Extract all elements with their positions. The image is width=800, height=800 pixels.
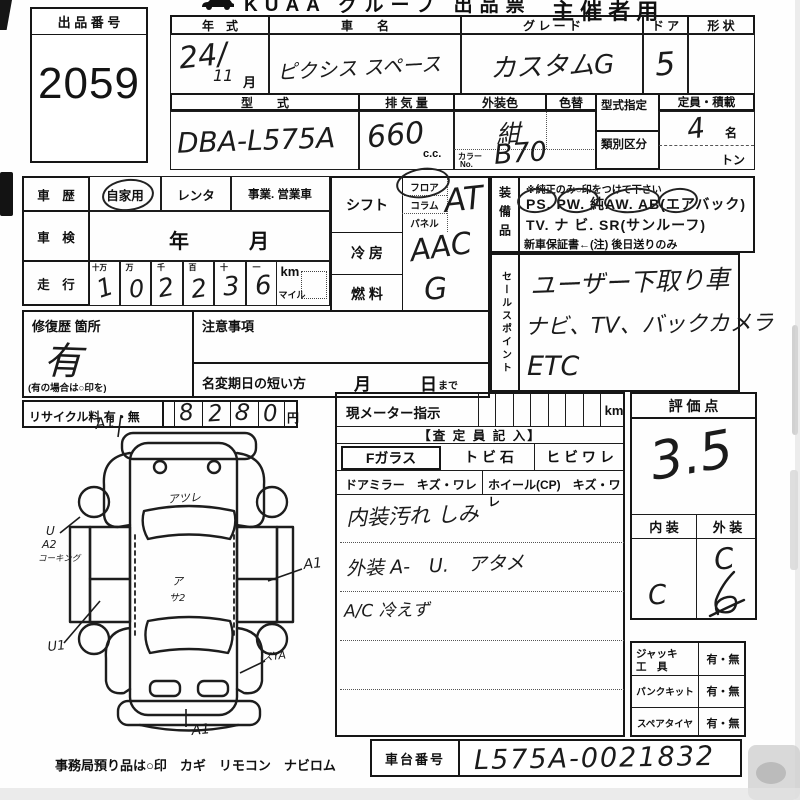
hood-nozzle [154,461,166,473]
meter-cell [530,394,547,426]
meter-cell [565,394,582,426]
model-header: 型 式 [170,93,360,111]
scan-artifact [756,762,786,784]
auction-sheet: KUAA グループ 出品票 主 催 者 用 出 品 番 号 2059 年 式 車… [0,0,800,800]
shape-header: 形 状 [687,15,755,35]
capacity-header: 定員・積載 [658,93,755,111]
diagram-annotation: アツレ [167,491,201,506]
name-value: ピクシス スペース [276,48,441,86]
capacity-unit: 名 [725,124,737,141]
sales-line2: ナビ、TV、バックカメラ [525,305,774,341]
digit-value: 3 [222,271,241,302]
front-door-flap-left [104,453,130,527]
class-label: 類別区分 [601,136,647,152]
month-suffix: 月 [243,72,256,91]
note-row: 内装汚れ しみ [340,494,624,543]
displacement-header: 排 気 量 [358,93,455,111]
fglass-label: Fガラス [341,446,441,470]
divider [482,470,483,494]
digit-value: 6 [253,270,272,301]
diagram-annotation: A1 [302,555,323,573]
divider [632,538,755,539]
diagram-annotation: A1 [93,413,116,433]
repair-note: (有の場合は○印を) [28,380,107,394]
caution-label: 注意事項 [202,316,254,335]
evaluation-label: 評 価 点 [632,394,755,419]
scan-artifact [748,745,800,800]
rear-window [145,617,232,653]
displacement-unit: c.c. [423,148,441,160]
color-no-value: B70 [493,136,548,171]
exterior-label: 外 装 [696,514,759,538]
meter-cell [583,394,600,426]
chassis-value: L575A-0021832 [474,741,716,776]
stone-label: ト ビ 石 [445,444,533,470]
equipment-box: 装備品 ※純正のみ○印をつけて下さい PS. PW. 純AW. AB(エアバック… [490,176,755,253]
shaken-cell: 年 月 [88,210,330,262]
wheel [257,487,287,517]
digit-header: 万 [126,262,134,273]
interior-label: 内 装 [632,514,696,538]
spare-label: スペアタイヤ [632,707,698,739]
diagram-annotation: U [46,524,55,538]
mileage-digit-cell: 十万1 [88,260,120,306]
door-value: 5 [654,44,677,83]
mirror-label: ドアミラー キズ・ワレ [345,476,477,493]
exhibit-number-box: 出 品 番 号 2059 [30,7,148,163]
diagram-annotation: コーキング [38,553,82,564]
rename-label: 名変期日の短い方 [202,373,306,392]
crack-label: ヒ ビ ワ レ [535,444,625,470]
year-header: 年 式 [170,15,270,35]
shaken-month: 月 [249,225,269,254]
door-panel-right [237,527,277,622]
divider [337,470,623,471]
equipment-label-cell: 装備品 [492,178,520,251]
sales-line1: ユーザー下取り車 [529,260,730,303]
assessor-header: 【査 定 員 記 入】 [337,426,623,444]
mileage-digit-cell: 十3 [214,260,246,306]
door-panel-left [90,527,130,622]
mileage-digit-cell: 一6 [246,260,278,306]
hood-nozzle [208,461,220,473]
door-cell: 5 [642,33,689,95]
handwritten-scribble [704,570,748,618]
fuel-label: 燃 料 [332,274,402,314]
chassis-box: 車台番号 L575A-0021832 [370,739,742,777]
color-change-header: 色替 [545,93,597,111]
leader-line [268,569,302,581]
leader-line [118,415,121,437]
shift-column: コラム [402,196,447,214]
jack-label-2: 工 具 [636,659,668,674]
interior-grade: C [646,579,668,612]
footer-note: 事務局預り品は○印 カギ リモコン ナビロム [55,755,336,774]
puncture-label: パンクキット [632,675,698,707]
wheel [79,624,109,654]
diagram-annotation: A2 [41,538,57,551]
diagram-annotation: スYA [261,649,287,664]
equipment-label: 装備品 [497,186,514,243]
history-label: 車 歴 [22,176,90,212]
mile-checkbox [301,271,327,299]
tail-light [150,681,180,696]
car-body [130,443,237,715]
digit-header: 千 [157,262,165,273]
color-no-label2: No. [460,160,473,169]
shaken-year: 年 [169,225,189,254]
tail-light [198,681,228,696]
km-label: km [281,264,300,279]
scan-artifact [792,325,798,435]
diagram-annotation: U1 [47,638,66,655]
side-sill-left [70,527,90,622]
digit-value: 0 [127,274,145,303]
scan-artifact [0,0,12,30]
model-value: DBA-L575A [176,121,335,160]
mileage-label: 走 行 [22,260,90,306]
type-designation-label: 型式指定 [601,97,647,113]
scan-artifact [795,0,800,800]
sales-label-cell: セールスポイント [492,255,520,390]
spare-options: 有・無 [698,707,748,739]
meter-label: 現メーター指示 [346,402,441,422]
scan-artifact [0,172,13,216]
repair-value: 有 [43,329,83,385]
car-damage-diagram: A1 アツレ U A2 コーキング ア サ2 A1 U1 スYA A1 [38,413,338,747]
jack-options: 有・無 [698,643,748,675]
assessor-box: 現メーター指示 km 【査 定 員 記 入】 Fガラス ト ビ 石 ヒ ビ ワ … [335,392,625,737]
cooling-label: 冷 房 [332,232,402,274]
meter-cell [548,394,565,426]
mileage-digit-cell: 百2 [183,260,215,306]
digit-value: 1 [93,271,117,303]
class-cell: 類別区分 [595,130,660,170]
history-business: 事業. 営業車 [230,176,330,212]
door-header: ド ア [642,15,689,35]
type-designation-cell: 型式指定 [595,93,660,132]
caution-box: 注意事項 [192,310,490,364]
sales-line3: ETC [527,351,579,382]
diagram-annotation: A1 [190,721,211,739]
exhibit-number-label: 出 品 番 号 [32,9,146,35]
year-cell: 24/ 11 月 [170,33,270,95]
mileage-digit-cell: 万0 [120,260,152,306]
meter-cells [478,394,600,426]
equipment-line3: 新車保証書←(注) 後日送りのみ [524,236,677,252]
meter-km: km [600,394,627,426]
shaken-label: 車 検 [22,210,90,262]
meter-cell [495,394,512,426]
grade-value: カスタムG [489,43,614,84]
grade-cell: カスタムG [460,33,644,95]
scan-artifact [790,470,798,570]
color-header: 外装色 [453,93,547,111]
fuel-value: G [423,271,449,308]
year-month-value: 11 [213,66,233,85]
displacement-cell: 660 c.c. [358,111,455,170]
sales-label: セールスポイント [498,271,513,375]
ton-label: トン [721,151,745,168]
note-row [340,690,624,735]
capacity-value: 4 [685,111,707,146]
assessor-note-3: A/C 冷えず [344,595,430,621]
divider [696,514,697,618]
name-cell: ピクシス スペース [268,33,462,95]
mileage-digit-cell: 千2 [151,260,183,306]
digit-header: 百 [189,262,197,273]
rear-flap-right [237,628,262,693]
note-row [340,641,624,690]
shape-cell [687,33,755,95]
name-header: 車 名 [268,15,462,35]
grade-header: グ レ ー ド [460,15,644,35]
assessor-note-2: 外装 A- U. アタメ [346,548,525,581]
evaluation-box: 評 価 点 3.5 内 装 外 装 C C [630,392,757,620]
note-row: 外装 A- U. アタメ [340,543,624,592]
chassis-label: 車台番号 [372,741,460,775]
assessor-note-1: 内装汚れ しみ [346,498,480,533]
cooling-value: AAC [408,226,474,269]
windshield [143,506,236,539]
scan-artifact [0,788,800,800]
rename-made: まで [438,377,458,392]
exhibit-number: 2059 [32,49,146,119]
evaluation-score: 3.5 [645,419,737,492]
digit-value: 2 [156,272,177,303]
front-door-flap-right [237,453,264,527]
model-cell: DBA-L575A [170,111,360,170]
rear-flap-left [106,628,130,693]
meter-cell [513,394,530,426]
shift-label: シフト [332,178,402,232]
note-row: A/C 冷えず [340,592,624,641]
digit-value: 2 [189,273,209,304]
meter-cell [478,394,495,426]
tools-box: ジャッキ 工 具 有・無 パンクキット 有・無 スペアタイヤ 有・無 [630,641,746,737]
mileage-unit-cell: km マイル [276,260,331,306]
capacity-cell: 4 名 トン [658,111,755,170]
puncture-options: 有・無 [698,675,748,707]
ton-divider [659,145,754,146]
color-cell: 紺 カラー No. B70 [453,111,597,170]
displacement-value: 660 [366,116,426,156]
equipment-line2: TV. ナ ビ. SR(サンルーフ) [526,215,706,235]
diagram-annotation: ア [172,575,185,588]
sales-points-box: セールスポイント ユーザー下取り車 ナビ、TV、バックカメラ ETC [490,253,740,392]
diagram-annotation: サ2 [169,593,185,604]
history-rental: レンタ [160,176,232,212]
car-silhouette-icon [201,0,235,11]
repair-box: 修復歴 箇所 有 (有の場合は○印を) [22,310,194,398]
